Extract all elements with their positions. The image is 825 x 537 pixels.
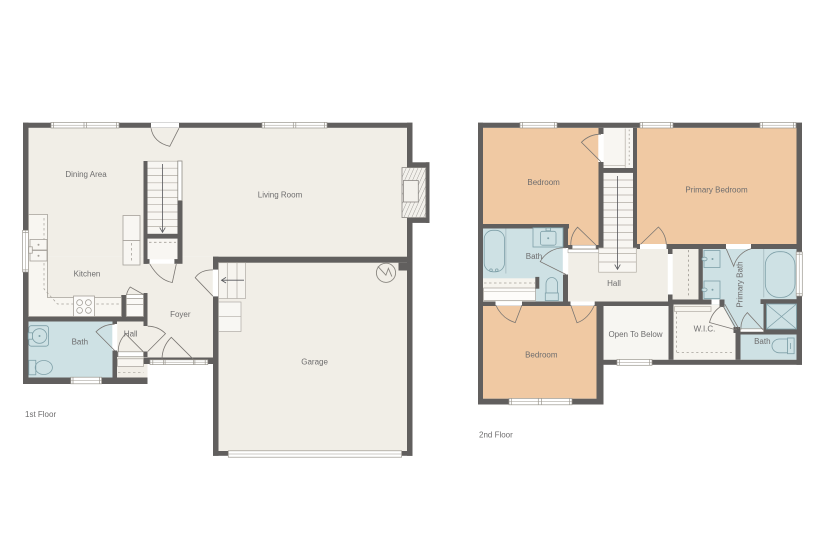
svg-text:Bedroom: Bedroom	[525, 351, 558, 360]
svg-text:Primary Bath: Primary Bath	[735, 261, 744, 307]
svg-text:Open To Below: Open To Below	[608, 330, 662, 339]
svg-text:Bath: Bath	[526, 252, 542, 261]
svg-text:Garage: Garage	[301, 358, 328, 367]
svg-text:2nd Floor: 2nd Floor	[479, 431, 513, 440]
svg-text:Foyer: Foyer	[170, 310, 191, 319]
svg-text:1st Floor: 1st Floor	[25, 410, 56, 419]
svg-text:Bath: Bath	[72, 338, 88, 347]
svg-text:Primary Bedroom: Primary Bedroom	[685, 185, 748, 194]
svg-text:Bedroom: Bedroom	[527, 178, 560, 187]
svg-text:Living Room: Living Room	[258, 190, 303, 199]
svg-text:Dining Area: Dining Area	[65, 170, 107, 179]
svg-text:Kitchen: Kitchen	[74, 270, 101, 279]
svg-text:Hall: Hall	[124, 330, 138, 339]
svg-text:Hall: Hall	[607, 279, 621, 288]
svg-text:Bath: Bath	[754, 337, 770, 346]
svg-text:W.I.C.: W.I.C.	[694, 325, 716, 334]
